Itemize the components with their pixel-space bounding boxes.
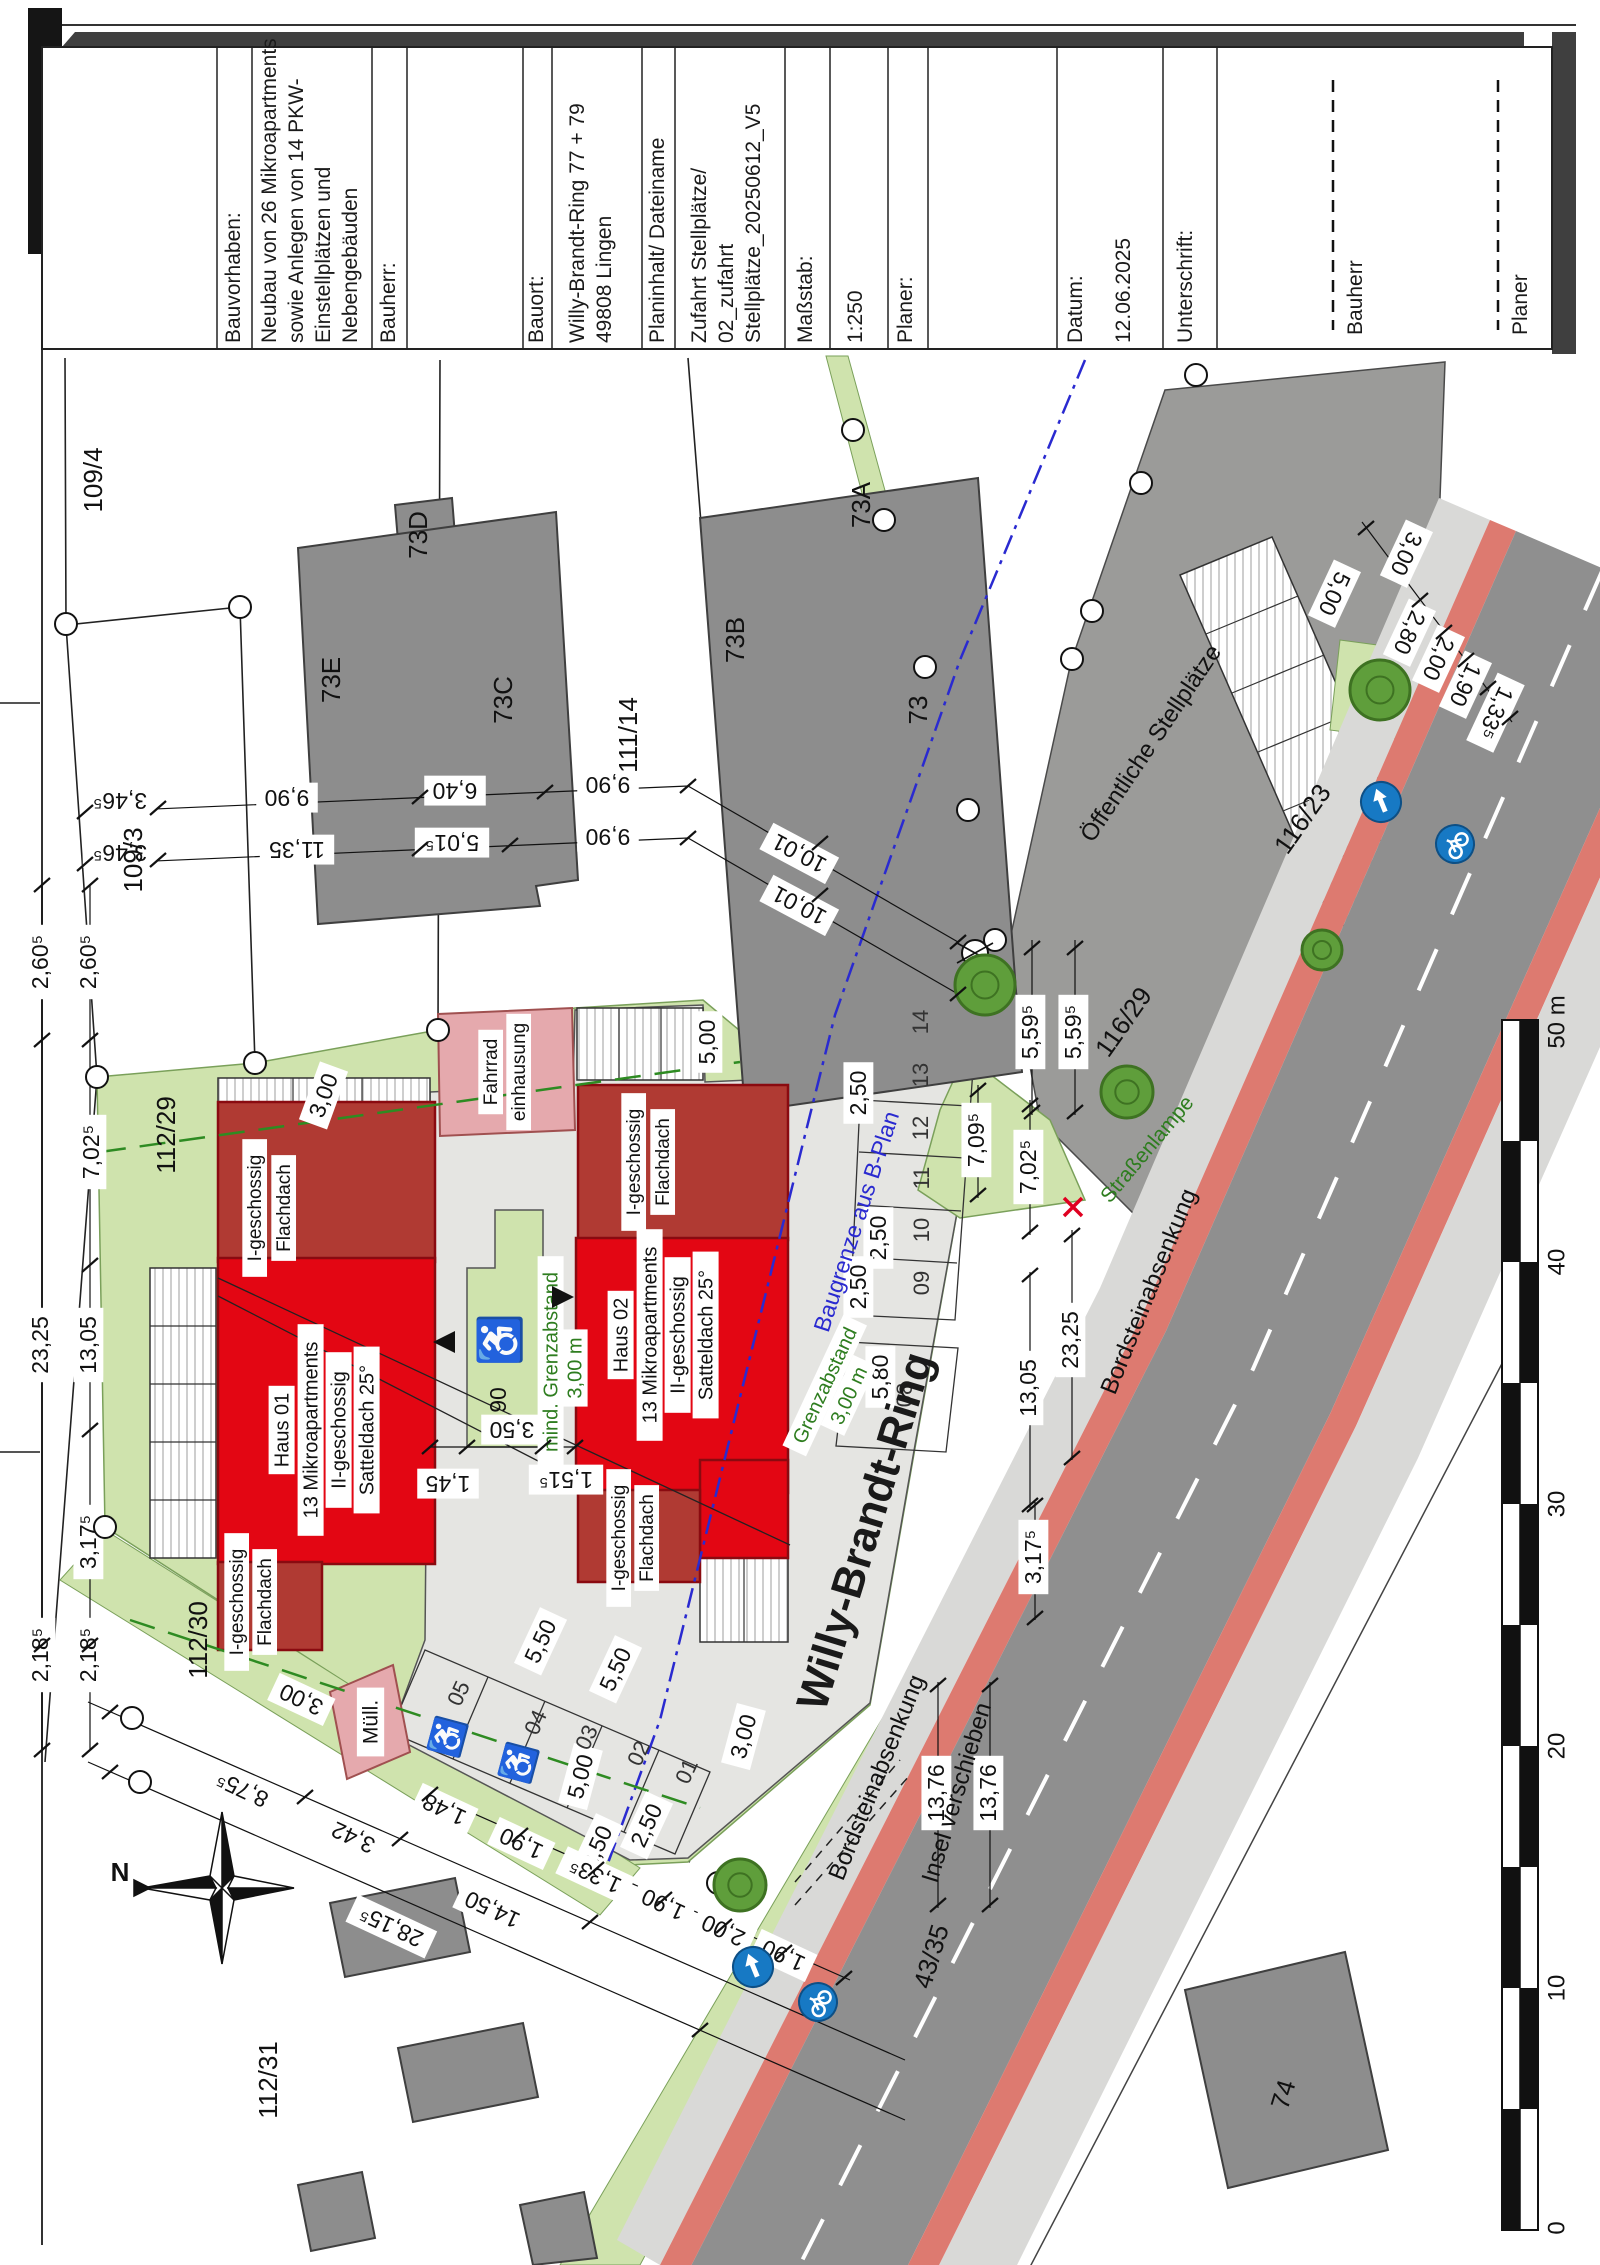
field-planer-label: Planer: bbox=[894, 276, 917, 343]
survey-circle-icon bbox=[86, 1066, 108, 1088]
label-text: Satteldach 25° bbox=[356, 1365, 378, 1495]
wing-label: Flachdach bbox=[271, 1155, 296, 1261]
label-text: 112/29 bbox=[151, 1096, 181, 1174]
survey-circle-icon bbox=[914, 656, 936, 678]
dim-label: 9,90 bbox=[256, 783, 318, 813]
field-planinhalt-line2: 02_zufahrt bbox=[715, 244, 738, 343]
survey-circle-icon bbox=[1081, 600, 1103, 622]
label-text: 5,59⁵ bbox=[1060, 1005, 1086, 1059]
tick-icon bbox=[102, 1705, 118, 1719]
label-text: 73D bbox=[403, 511, 433, 559]
building-73 bbox=[700, 478, 1022, 1112]
dim-label: 23,25 bbox=[1055, 1303, 1085, 1377]
tick-icon bbox=[582, 1915, 598, 1929]
label-text: II-geschossig bbox=[328, 1371, 350, 1489]
label-text: 112/31 bbox=[253, 2041, 283, 2119]
dim-label: 90 bbox=[485, 1387, 511, 1413]
label-text: Satteldach 25° bbox=[695, 1270, 717, 1400]
stall-number: 12 bbox=[908, 1116, 933, 1140]
building-label: 73B bbox=[720, 617, 750, 663]
signature-planer-label: Planer bbox=[1509, 274, 1532, 335]
label-text: 5,01⁵ bbox=[425, 830, 479, 856]
house-label: II-geschossig bbox=[326, 1352, 352, 1508]
wing-label: I-geschossig bbox=[224, 1533, 249, 1671]
wing-label: Flachdach bbox=[634, 1485, 659, 1591]
survey-circle-icon bbox=[873, 509, 895, 531]
tick-icon bbox=[102, 1765, 118, 1779]
dim-label: 2,60⁵ bbox=[25, 925, 55, 999]
house-label: Haus 01 bbox=[269, 1386, 295, 1474]
label-text: 111/14 bbox=[613, 697, 643, 773]
dim-label: 2,18⁵ bbox=[25, 1618, 55, 1692]
label-text: 09 bbox=[909, 1271, 934, 1295]
label-text: 2,50 bbox=[845, 1071, 871, 1116]
field-bauort-line2: 49808 Lingen bbox=[593, 216, 616, 343]
wing-label: I-geschossig bbox=[606, 1469, 631, 1607]
dim-label: 1,51⁵ bbox=[529, 1465, 603, 1495]
dim-label: 5,59⁵ bbox=[1015, 995, 1045, 1069]
label-text: 23,25 bbox=[1057, 1311, 1083, 1369]
scale-label: 0 bbox=[1543, 2221, 1570, 2234]
label-text: 14 bbox=[908, 1010, 933, 1034]
dim-label: 11,35 bbox=[260, 835, 334, 865]
north-arrow-icon bbox=[134, 1812, 294, 1964]
label-text: II-geschossig bbox=[667, 1276, 689, 1394]
field-planinhalt-label: Planinhalt/ Dateiname bbox=[646, 138, 669, 343]
site-plan-drawing: 3,46⁵9,906,409,9010,013,46⁵11,355,01⁵9,9… bbox=[0, 0, 1600, 2265]
label-text: 3,00 m bbox=[564, 1337, 586, 1398]
building-73cde bbox=[298, 512, 578, 924]
dim-label: 23,25 bbox=[25, 1308, 55, 1382]
label-text: 0 bbox=[1543, 2221, 1570, 2234]
label-text: 11 bbox=[909, 1167, 934, 1190]
dim-label: 3,17⁵ bbox=[1018, 1520, 1048, 1594]
field-planinhalt-line1: Zufahrt Stellplätze/ bbox=[688, 168, 711, 343]
label-text: 73E bbox=[316, 657, 346, 703]
field-datum-label: Datum: bbox=[1064, 275, 1087, 343]
label-text: 40 bbox=[1543, 1249, 1570, 1276]
label-text: I-geschossig bbox=[624, 1109, 645, 1216]
signature-bauherr-label: Bauherr bbox=[1344, 260, 1367, 335]
dim-label: 13,05 bbox=[73, 1308, 103, 1382]
survey-circle-icon bbox=[121, 1707, 143, 1729]
scale-label: 10 bbox=[1543, 1975, 1570, 2002]
label-text: 90 bbox=[485, 1387, 511, 1413]
survey-circle-icon bbox=[229, 596, 251, 618]
survey-circle-icon bbox=[129, 1771, 151, 1793]
label-text: I-geschossig bbox=[227, 1549, 248, 1656]
dim-label: 9,90 bbox=[577, 822, 639, 852]
label-text: 7,09⁵ bbox=[963, 1113, 989, 1167]
label-text: 109/4 bbox=[78, 447, 108, 512]
label-text: Flachdach bbox=[637, 1494, 658, 1582]
survey-circle-icon bbox=[842, 419, 864, 441]
tree-icon bbox=[714, 1859, 766, 1911]
dim-label: 2,18⁵ bbox=[73, 1618, 103, 1692]
tree-icon bbox=[1302, 930, 1342, 970]
field-datum-value: 12.06.2025 bbox=[1112, 238, 1135, 343]
label-text: 3,17⁵ bbox=[1020, 1530, 1046, 1584]
label-text: 23,25 bbox=[27, 1316, 53, 1374]
label-text: 9,90 bbox=[586, 824, 631, 850]
label-text: 20 bbox=[1543, 1733, 1570, 1760]
note-label: mind. Grenzabstand bbox=[538, 1256, 564, 1468]
house-label: Haus 02 bbox=[608, 1291, 634, 1379]
field-bauvorhaben-line1: Neubau von 26 Mikroapartments bbox=[258, 38, 281, 343]
label-text: 9,90 bbox=[265, 785, 310, 811]
parcel-label: 112/31 bbox=[253, 2041, 283, 2119]
tick-icon bbox=[392, 1832, 408, 1846]
tick-icon bbox=[297, 1790, 313, 1804]
label-text: 13 bbox=[908, 1063, 933, 1087]
label-text: 73 bbox=[903, 696, 933, 725]
dim-label: 3,17⁵ bbox=[73, 1505, 103, 1579]
survey-circle-icon bbox=[1185, 364, 1207, 386]
building-label: 73A bbox=[846, 481, 876, 528]
dim-label: 2,60⁵ bbox=[73, 925, 103, 999]
label-text: 2,18⁵ bbox=[75, 1628, 101, 1682]
field-massstab-value: 1:250 bbox=[844, 290, 867, 343]
label-text: Flachdach bbox=[274, 1164, 295, 1252]
shed-label: Fahrrad bbox=[478, 1030, 503, 1114]
label-text: einhausung bbox=[509, 1023, 530, 1121]
survey-circle-icon bbox=[94, 1516, 116, 1538]
building-label: 73C bbox=[488, 676, 518, 724]
label-text: 1,45 bbox=[426, 1471, 471, 1497]
survey-circle-icon bbox=[244, 1052, 266, 1074]
label-text: Haus 02 bbox=[610, 1298, 632, 1373]
note-label: 3,00 m bbox=[562, 1329, 588, 1406]
house-label: 13 Mikroapartments bbox=[298, 1324, 324, 1536]
field-bauort-line1: Willy-Brandt-Ring 77 + 79 bbox=[566, 103, 589, 343]
label-text: Fahrrad bbox=[481, 1039, 502, 1106]
dim-label: 3,50 bbox=[481, 1415, 543, 1445]
stall-number: 09 bbox=[909, 1271, 934, 1295]
tree-icon bbox=[1350, 660, 1410, 720]
label-text: 2,18⁵ bbox=[27, 1628, 53, 1682]
parcel-label: 109/4 bbox=[78, 447, 108, 512]
dim-label: 7,09⁵ bbox=[961, 1103, 991, 1177]
label-text: 5,00 bbox=[694, 1020, 720, 1065]
survey-circle-icon bbox=[957, 799, 979, 821]
building-small bbox=[520, 2192, 597, 2265]
label-text: 73C bbox=[488, 676, 518, 724]
dim-label: 5,59⁵ bbox=[1058, 995, 1088, 1069]
wing-label: I-geschossig bbox=[242, 1139, 267, 1277]
parcel-label: 112/29 bbox=[151, 1096, 181, 1174]
label-text: 13 Mikroapartments bbox=[639, 1247, 661, 1424]
label-text: 7,02⁵ bbox=[1015, 1140, 1041, 1194]
field-bauort-label: Bauort: bbox=[525, 275, 548, 343]
label-text: 11,35 bbox=[269, 837, 325, 863]
label-text: I-geschossig bbox=[609, 1485, 630, 1592]
title-block: Bauvorhaben: Neubau von 26 Mikroapartmen… bbox=[42, 32, 1576, 354]
dim-label: 13,05 bbox=[1013, 1351, 1043, 1425]
dim-label: 1,45 bbox=[417, 1469, 479, 1499]
label-text: 13 Mikroapartments bbox=[300, 1342, 322, 1519]
field-planinhalt-line3: Stellplätze_20250612_V5 bbox=[742, 104, 765, 343]
house-label: Satteldach 25° bbox=[354, 1347, 380, 1514]
house-label: Satteldach 25° bbox=[693, 1252, 719, 1419]
title-top-shadow bbox=[62, 32, 1524, 47]
building-label: 73D bbox=[403, 511, 433, 559]
dim-label: 5,00 bbox=[692, 1011, 722, 1073]
label-text: 109/3 bbox=[118, 827, 148, 892]
survey-circle-icon bbox=[427, 1019, 449, 1041]
label-text: 7,02⁵ bbox=[78, 1125, 104, 1179]
scale-label: 20 bbox=[1543, 1733, 1570, 1760]
dim-label: 7,02⁵ bbox=[1013, 1130, 1043, 1204]
field-unterschrift-label: Unterschrift: bbox=[1174, 230, 1197, 343]
scale-bar bbox=[1502, 1020, 1538, 2230]
haus02-wing-north bbox=[578, 1085, 788, 1240]
scale-label: 30 bbox=[1543, 1491, 1570, 1518]
field-bauvorhaben-line4: Nebengebäuden bbox=[339, 188, 362, 343]
building-label: 73 bbox=[903, 696, 933, 725]
stall-number: 13 bbox=[908, 1063, 933, 1087]
title-right-shadow bbox=[1552, 32, 1576, 354]
stall-number: 11 bbox=[909, 1167, 934, 1190]
tree-icon bbox=[1101, 1066, 1153, 1118]
building-small bbox=[398, 2023, 538, 2122]
label-text: Müll. bbox=[360, 1700, 383, 1744]
label-text: 10 bbox=[909, 1218, 934, 1242]
wing-label: Flachdach bbox=[252, 1549, 277, 1655]
label-text: I-geschossig bbox=[245, 1155, 266, 1262]
label-text: 2,60⁵ bbox=[75, 935, 101, 989]
north-letter: N bbox=[111, 1857, 130, 1887]
dim-label: 6,40 bbox=[424, 776, 486, 806]
label-text: N bbox=[111, 1857, 130, 1887]
house-label: II-geschossig bbox=[665, 1257, 691, 1413]
label-text: 3,46⁵ bbox=[93, 788, 147, 814]
dim-label: 7,02⁵ bbox=[76, 1115, 106, 1189]
label-text: 73B bbox=[720, 617, 750, 663]
field-bauvorhaben-label: Bauvorhaben: bbox=[222, 212, 245, 343]
shed-label: Müll. bbox=[357, 1688, 384, 1757]
parcel-label: 109/3 bbox=[118, 827, 148, 892]
dim-label: 9,90 bbox=[577, 770, 639, 800]
parcel-label: 111/14 bbox=[613, 697, 643, 773]
label-text: 50 m bbox=[1543, 995, 1570, 1048]
parcel-label: 112/30 bbox=[183, 1601, 213, 1679]
label-text: 9,90 bbox=[586, 772, 631, 798]
label-text: Flachdach bbox=[653, 1118, 674, 1206]
label-text: Haus 01 bbox=[271, 1393, 293, 1468]
label-text: 2,60⁵ bbox=[27, 935, 53, 989]
drawing-area: 3,46⁵9,906,409,9010,013,46⁵11,355,01⁵9,9… bbox=[25, 356, 1600, 2265]
label-text: Flachdach bbox=[255, 1558, 276, 1646]
survey-circle-icon bbox=[55, 613, 77, 635]
wheelchair-icon: ♿ bbox=[475, 1314, 524, 1366]
label-text: 1,51⁵ bbox=[539, 1467, 593, 1493]
dim-label: 3,46⁵ bbox=[83, 786, 157, 816]
field-bauvorhaben-line3: Einstellplätzen und bbox=[312, 167, 335, 343]
scale-label: 50 m bbox=[1543, 995, 1570, 1048]
wing-label: I-geschossig bbox=[621, 1093, 646, 1231]
label-text: 10 bbox=[1543, 1975, 1570, 2002]
label-text: 13,76 bbox=[975, 1764, 1001, 1822]
dim-label: 2,50 bbox=[843, 1062, 873, 1124]
survey-circle-icon bbox=[1130, 472, 1152, 494]
label-text: 3,50 bbox=[490, 1417, 535, 1443]
stall-number: 10 bbox=[909, 1218, 934, 1242]
plan-sheet: 3,46⁵9,906,409,9010,013,46⁵11,355,01⁵9,9… bbox=[0, 0, 1600, 2265]
stall-number: 14 bbox=[908, 1010, 933, 1034]
building-74 bbox=[1185, 1952, 1388, 2188]
field-bauvorhaben-line2: sowie Anlegen von 14 PKW- bbox=[285, 78, 308, 343]
building-label: 73E bbox=[316, 657, 346, 703]
wing-label: Flachdach bbox=[650, 1109, 675, 1215]
label-text: 5,59⁵ bbox=[1017, 1005, 1043, 1059]
scale-label: 40 bbox=[1543, 1249, 1570, 1276]
label-text: 112/30 bbox=[183, 1601, 213, 1679]
house-label: 13 Mikroapartments bbox=[637, 1229, 663, 1441]
building-small bbox=[298, 2172, 375, 2251]
label-text: 13,05 bbox=[75, 1316, 101, 1374]
label-text: 13,05 bbox=[1015, 1359, 1041, 1417]
label-text: 12 bbox=[908, 1116, 933, 1140]
label-text: 73A bbox=[846, 481, 876, 528]
field-bauherr-label: Bauherr: bbox=[377, 262, 400, 343]
tree-icon bbox=[955, 955, 1015, 1015]
shed-label: einhausung bbox=[506, 1014, 531, 1130]
svg-text:♿: ♿ bbox=[475, 1314, 524, 1366]
label-text: 30 bbox=[1543, 1491, 1570, 1518]
label-text: 6,40 bbox=[433, 778, 478, 804]
field-massstab-label: Maßstab: bbox=[794, 255, 817, 343]
survey-circle-icon bbox=[1061, 648, 1083, 670]
dim-label: 1,90 bbox=[629, 1878, 697, 1931]
